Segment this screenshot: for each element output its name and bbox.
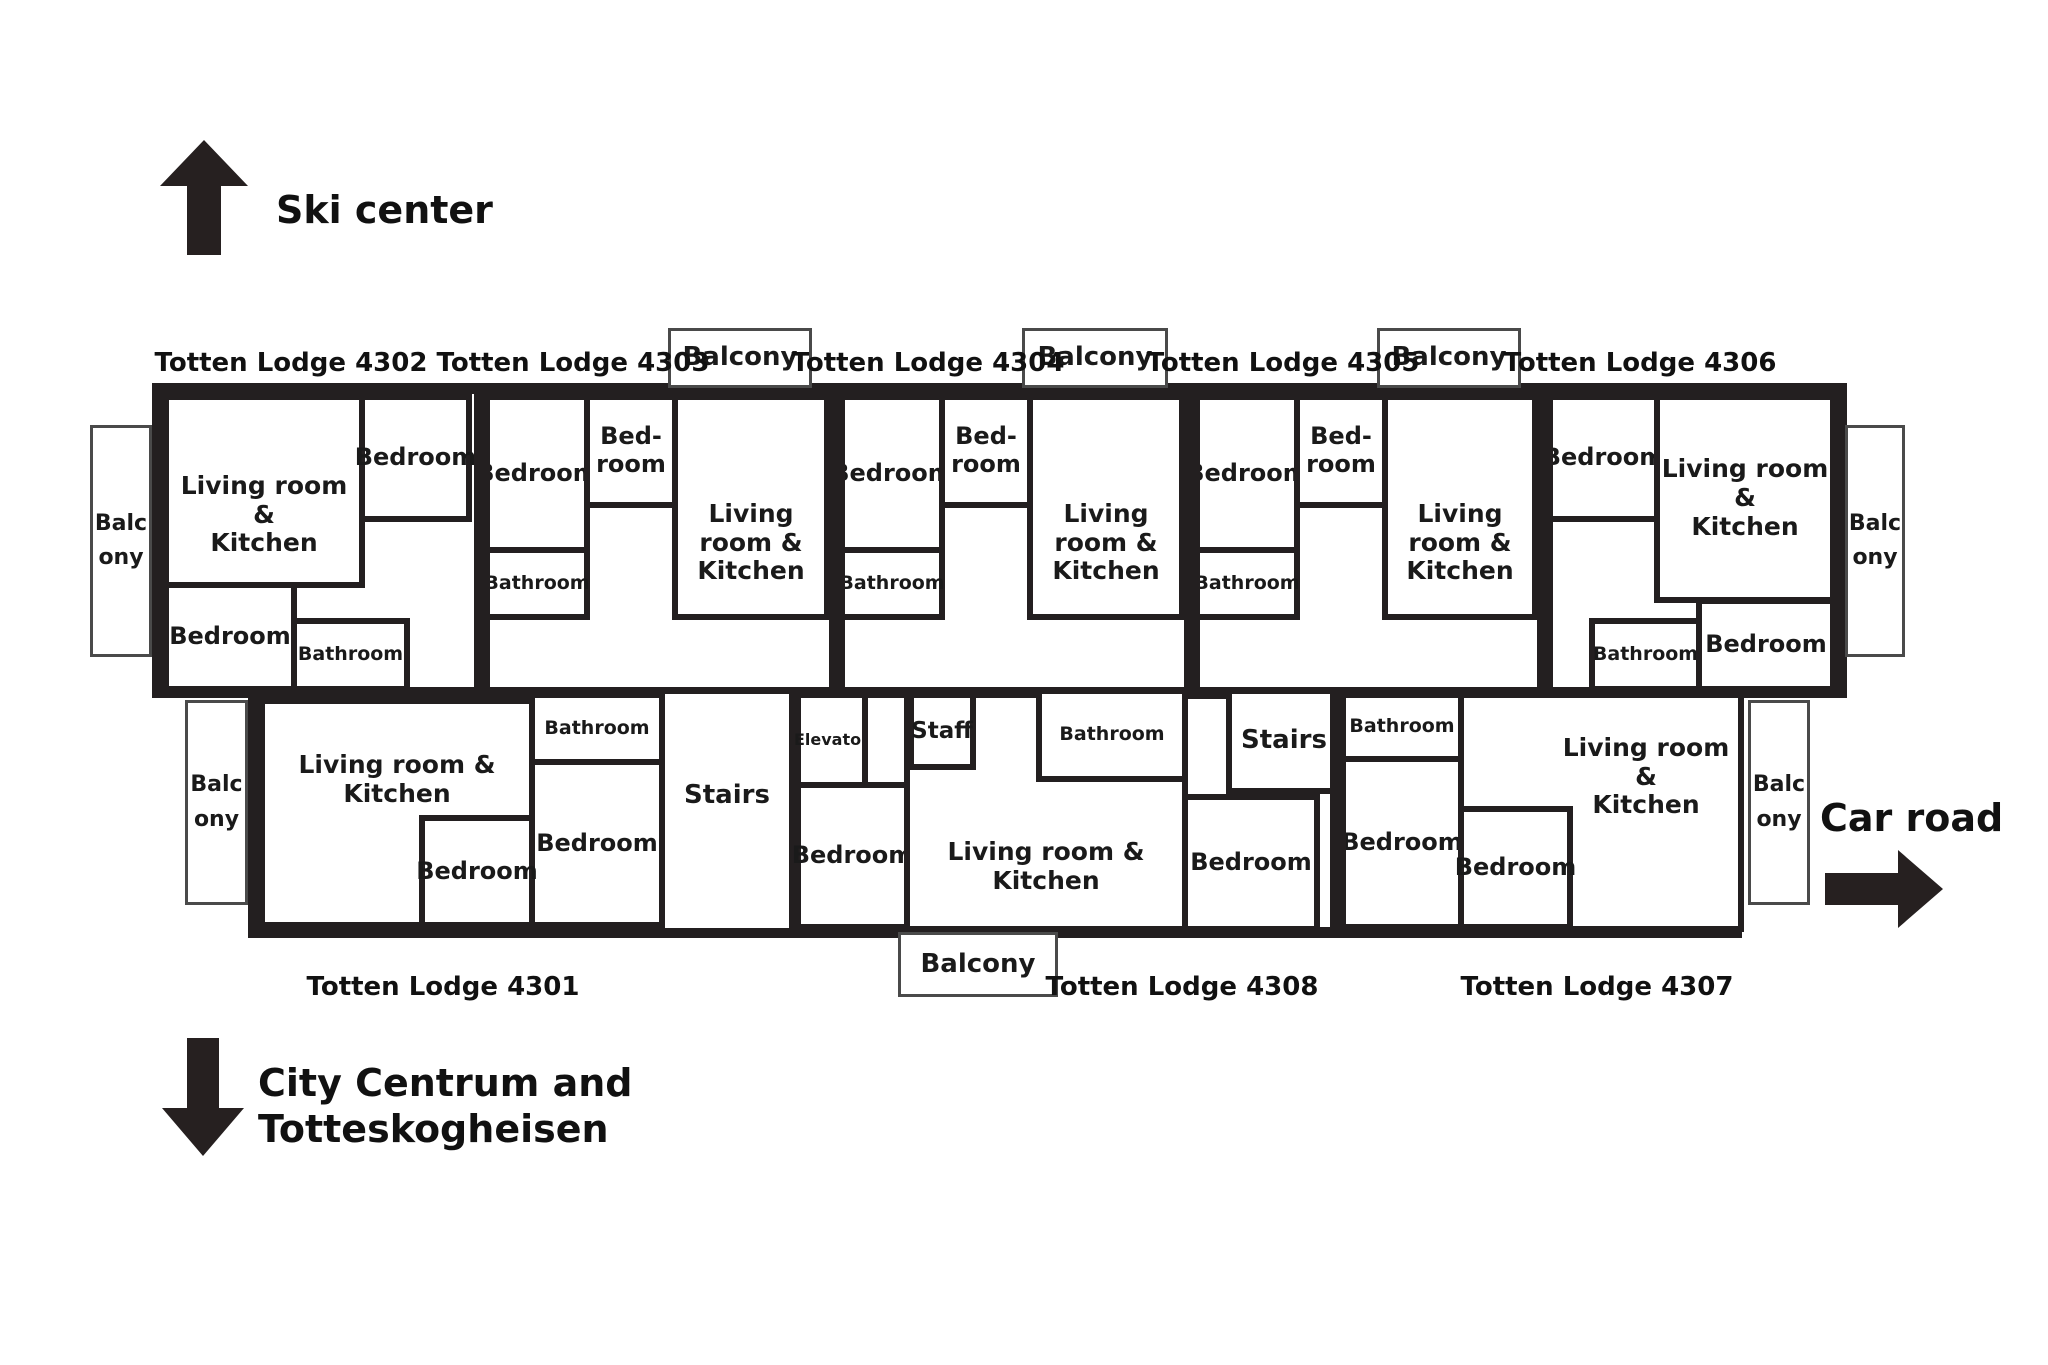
room-4304-bathroom: Bathroom: [839, 547, 945, 620]
room-4308-bedroom-west: Bedroom: [795, 782, 910, 930]
room-elevator: Elevator: [795, 692, 868, 788]
room-4304-bedroom-small: Bed- room: [939, 394, 1033, 508]
lodge-4304-label: Totten Lodge 4304: [788, 348, 1068, 378]
room-4301-bedroom-right: Bedroom: [529, 759, 665, 928]
city-centrum-label: City Centrum and Totteskogheisen: [258, 1060, 632, 1153]
room-4303-bedroom: Bedroom: [484, 394, 590, 553]
balcony-4306-right: Balcony: [1845, 425, 1905, 657]
room-4307-bathroom: Bathroom: [1340, 692, 1464, 762]
lodge-4301-label: Totten Lodge 4301: [303, 972, 583, 1002]
room-4303-bathroom: Bathroom: [484, 547, 590, 620]
room-4301-bathroom: Bathroom: [529, 692, 665, 765]
balcony-4302-left: Balcony: [90, 425, 152, 657]
room-4306-bedroom-top: Bedroom: [1547, 394, 1660, 522]
room-4306-living: Living room & Kitchen: [1654, 394, 1836, 603]
balcony-4308-bottom: Balcony: [898, 932, 1058, 997]
lodge-4306-label: Totten Lodge 4306: [1500, 348, 1780, 378]
wall-divider: [1184, 389, 1200, 692]
room-4301-bedroom-inner: Bedroom: [419, 815, 535, 928]
balcony-4301-left: Balcony: [185, 700, 248, 905]
floor-plan: Ski center City Centrum and Totteskoghei…: [0, 0, 2048, 1365]
room-4307-bedroom-middle: Bedroom: [1458, 806, 1573, 930]
wall-divider: [1537, 389, 1553, 692]
elevator-shaft-room: [862, 692, 910, 788]
wall-divider: [829, 389, 845, 692]
city-centrum-arrow-icon: [162, 1038, 244, 1156]
room-4302-bathroom: Bathroom: [291, 618, 410, 692]
room-4303-bedroom-small: Bed- room: [584, 394, 678, 508]
room-4304-living: Living room & Kitchen: [1027, 394, 1185, 620]
room-4302-living: Living room & Kitchen: [163, 394, 365, 588]
room-4308-bedroom-east: Bedroom: [1182, 794, 1320, 932]
room-4306-bedroom-bottom: Bedroom: [1696, 598, 1836, 692]
room-4305-bedroom-small: Bed- room: [1294, 394, 1388, 508]
room-4306-bathroom: Bathroom: [1589, 618, 1702, 692]
room-4308-bathroom: Bathroom: [1036, 688, 1188, 782]
room-4305-bedroom: Bedroom: [1194, 394, 1300, 553]
room-4302-bedroom-top: Bedroom: [359, 394, 472, 522]
room-4303-living: Living room & Kitchen: [672, 394, 830, 620]
car-road-arrow-icon: [1825, 850, 1943, 928]
lodge-4303-label: Totten Lodge 4303: [433, 348, 713, 378]
ski-center-label: Ski center: [276, 188, 493, 232]
room-4308-staff: Staff: [908, 692, 976, 770]
room-stairs-east: Stairs: [1226, 688, 1342, 794]
balcony-4307-right: Balcony: [1748, 700, 1810, 905]
ski-center-arrow-icon: [160, 140, 248, 255]
wall-divider: [1330, 692, 1346, 934]
lodge-4305-label: Totten Lodge 4305: [1143, 348, 1423, 378]
lodge-4302-label: Totten Lodge 4302: [151, 348, 431, 378]
room-4305-bathroom: Bathroom: [1194, 547, 1300, 620]
wall-divider: [474, 389, 490, 692]
lodge-4308-label: Totten Lodge 4308: [1042, 972, 1322, 1002]
room-4304-bedroom: Bedroom: [839, 394, 945, 553]
car-road-label: Car road: [1820, 796, 2003, 840]
room-4307-bedroom-west: Bedroom: [1340, 756, 1464, 930]
room-4305-living: Living room & Kitchen: [1382, 394, 1538, 620]
room-stairs-west: Stairs: [659, 688, 795, 934]
lodge-4307-label: Totten Lodge 4307: [1457, 972, 1737, 1002]
room-4302-bedroom-bottom: Bedroom: [163, 582, 297, 692]
